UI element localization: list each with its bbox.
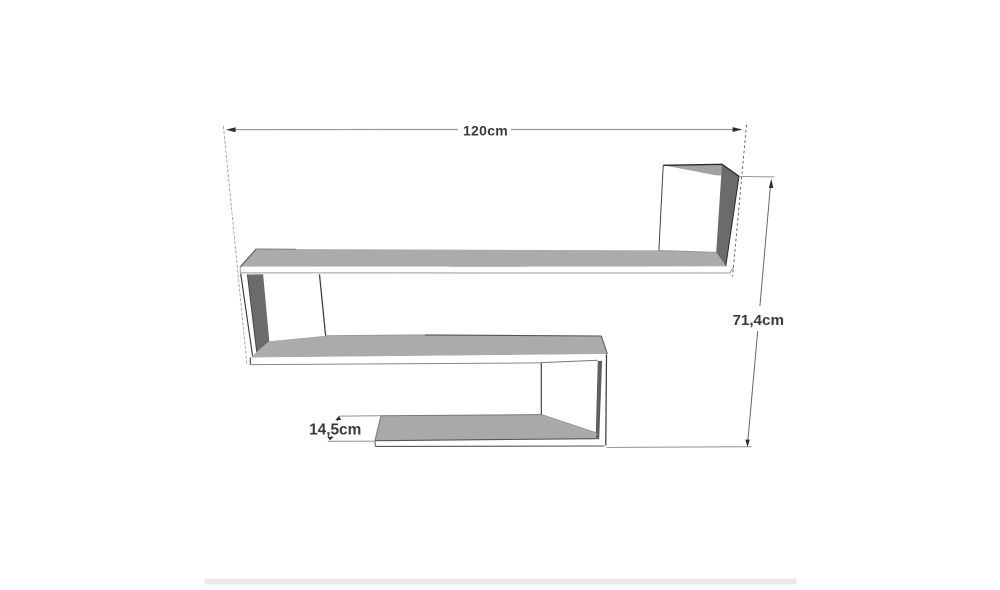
svg-text:14,5cm: 14,5cm	[309, 421, 361, 438]
svg-text:71,4cm: 71,4cm	[732, 312, 784, 329]
svg-text:120cm: 120cm	[463, 123, 508, 139]
